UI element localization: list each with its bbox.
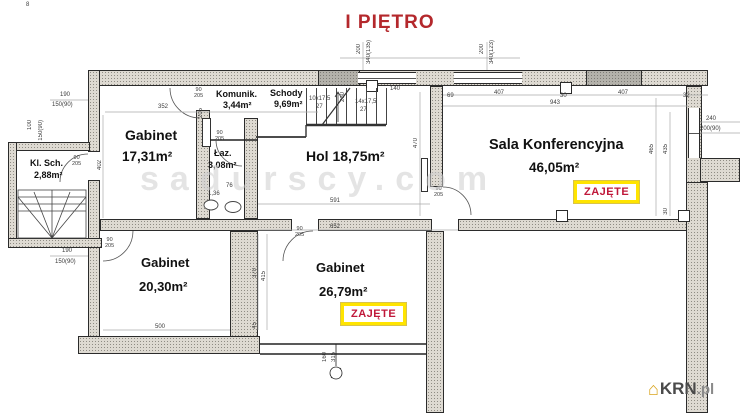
room-klsch-label: Kl. Sch.: [30, 158, 63, 168]
room-komunik-label: Komunik.: [216, 89, 257, 99]
room-klsch-area: 2,88m²: [34, 170, 63, 180]
dim-label: 200(90): [700, 126, 721, 132]
dim-label: 27: [316, 104, 323, 110]
dim-label: 591: [330, 198, 340, 204]
door-size-label: 90 205: [105, 237, 114, 249]
dim-label: 190: [62, 248, 72, 254]
room-sala-label: Sala Konferencyjna: [489, 137, 624, 153]
dim-label: 260: [340, 92, 346, 102]
room-hol-name: Hol: [306, 148, 329, 164]
room-gabinet3-area: 26,79m²: [319, 284, 367, 299]
dim-label: 8: [26, 2, 29, 8]
bathroom-fixtures: [204, 200, 241, 213]
room-gabinet1-area: 17,31m²: [122, 149, 172, 164]
dim-label: 500: [155, 324, 165, 330]
dim-label: 340(135): [366, 40, 372, 64]
room-gabinet2-label: Gabinet: [141, 255, 189, 270]
room-gabinet2-area: 20,30m²: [139, 279, 187, 294]
room-hol-label: Hol 18,75m²: [306, 148, 385, 164]
krn-logo-name: KRN: [660, 379, 697, 398]
dim-label: 150(90): [55, 259, 76, 265]
dim-label: 200: [356, 44, 362, 54]
dim-label: 402: [97, 160, 103, 170]
dim-label: 150(90): [38, 120, 44, 141]
dim-label: 14x17,5: [355, 99, 376, 105]
dim-label: 407: [494, 90, 504, 96]
dim-label: 30: [663, 208, 669, 215]
dim-label: 205: [198, 108, 204, 118]
dim-label: 652: [330, 224, 340, 230]
floor-plan-canvas: I PIĘTRO: [0, 0, 740, 413]
dim-label: 150(90): [52, 102, 73, 108]
klsch-stairs: [18, 190, 86, 238]
dim-label: 465: [649, 144, 655, 154]
room-komunik-area: 3,44m²: [223, 100, 252, 110]
room-hol-area: 18,75m²: [332, 148, 384, 164]
dim-label: 100: [27, 120, 33, 130]
dim-label: 470: [413, 138, 419, 148]
status-badge-gabinet3: ZAJĘTE: [341, 303, 406, 325]
dim-label: 352: [158, 104, 168, 110]
dim-label: 32: [683, 93, 690, 99]
dim-label: 943: [550, 100, 560, 106]
room-laz-label: Łaz.: [214, 148, 232, 158]
dim-label: 30: [560, 93, 567, 99]
door-size-label: 90 205: [295, 226, 304, 238]
dim-label: 27: [360, 107, 367, 113]
dim-label: 315: [331, 352, 337, 362]
dim-label: 200: [479, 44, 485, 54]
room-laz-area: 3,08m²: [208, 160, 237, 170]
dim-label: 370: [252, 268, 258, 278]
krn-logo-tld: .pl: [697, 381, 715, 398]
dim-label: 435: [663, 144, 669, 154]
room-gabinet1-label: Gabinet: [125, 127, 177, 143]
page-title: I PIĘTRO: [300, 12, 480, 34]
dim-label: 190: [60, 92, 70, 98]
dim-label: 140: [390, 86, 400, 92]
dim-label: 10x17,5: [309, 96, 330, 102]
dim-label: 76: [226, 183, 233, 189]
status-badge-sala: ZAJĘTE: [574, 181, 639, 203]
dim-label: 240: [706, 116, 716, 122]
dim-label: 69: [447, 93, 454, 99]
door-size-label: 90 205: [72, 155, 81, 167]
dim-label: 45: [252, 322, 258, 329]
house-icon: ⌂: [648, 379, 659, 399]
door-size-label: 90 205: [434, 186, 443, 198]
room-sala-area: 46,05m²: [529, 160, 579, 175]
door-size-label: 90 205: [194, 87, 203, 99]
dim-label: 407: [618, 90, 628, 96]
dim-label: 160: [322, 352, 328, 362]
room-schody-label: Schody: [270, 88, 303, 98]
door-arcs: [60, 88, 471, 261]
krn-logo[interactable]: ⌂KRN.pl: [648, 379, 714, 400]
dim-label: 340(123): [489, 40, 495, 64]
door-size-label: 90 205: [215, 130, 224, 142]
dim-label: 1,36: [208, 191, 220, 197]
room-schody-area: 9,69m²: [274, 99, 303, 109]
dim-label: 415: [261, 271, 267, 281]
room-gabinet3-label: Gabinet: [316, 260, 364, 275]
